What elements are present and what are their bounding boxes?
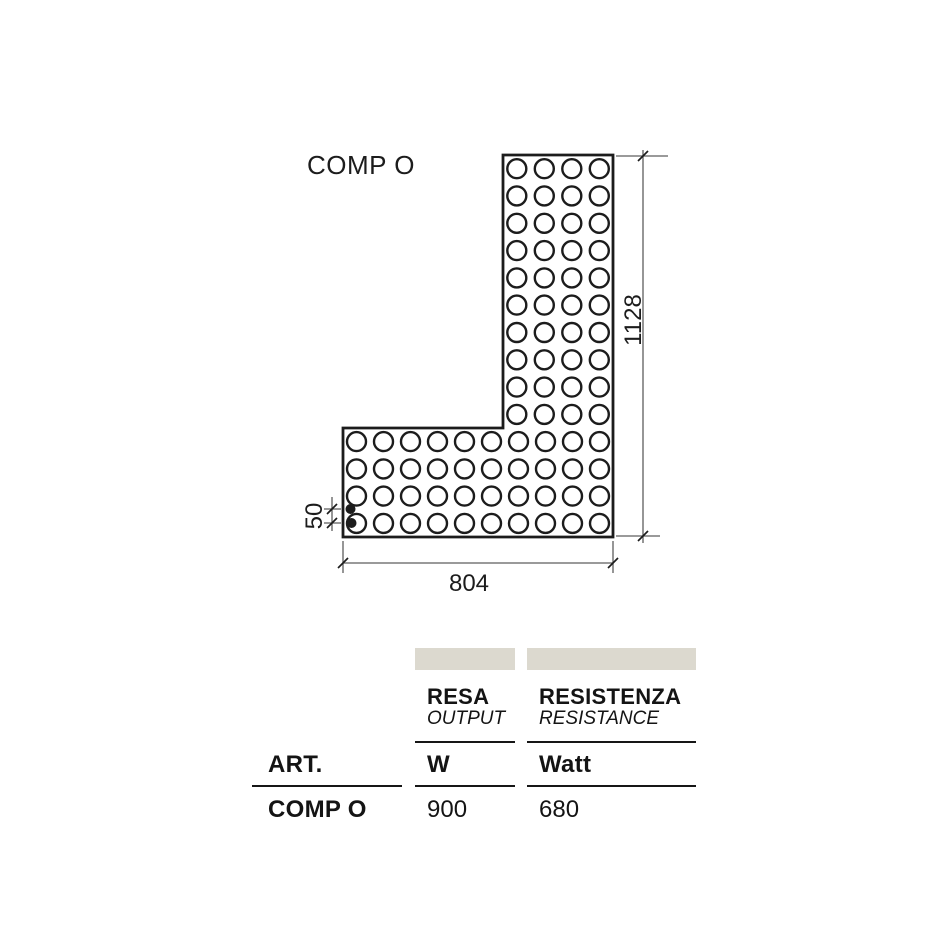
output-column-title: RESA: [427, 686, 489, 708]
output-value: 900: [427, 798, 467, 822]
resistance-column-title: RESISTENZA: [539, 686, 681, 708]
output-column-accent-bar: [415, 648, 515, 670]
output-column-subtitle: OUTPUT: [427, 709, 505, 728]
resistance-column-subtitle: RESISTANCE: [539, 709, 659, 728]
resistance-value: 680: [539, 798, 579, 822]
resistance-header-rule: [527, 741, 696, 743]
catalog-page: COMP O 112880450 RESA RESISTENZA OUTPUT …: [0, 0, 950, 950]
resistance-column-accent-bar: [527, 648, 696, 670]
article-name: COMP O: [268, 798, 367, 822]
art-header: ART.: [268, 753, 323, 777]
spec-table: RESA RESISTENZA OUTPUT RESISTANCE ART. W…: [0, 0, 950, 950]
output-unit: W: [427, 753, 450, 777]
resistance-unit: Watt: [539, 753, 591, 777]
resistance-column-rule: [527, 785, 696, 787]
output-header-rule: [415, 741, 515, 743]
output-column-rule: [415, 785, 515, 787]
art-column-rule: [252, 785, 402, 787]
